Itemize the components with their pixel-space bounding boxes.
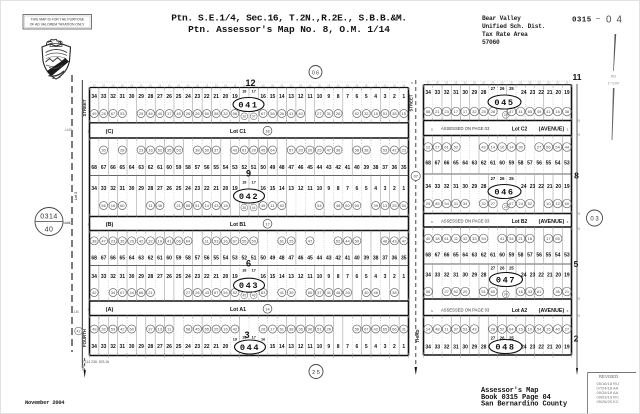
svg-text:23: 23 bbox=[111, 238, 116, 243]
svg-text:Tax Rate Area: Tax Rate Area bbox=[482, 31, 528, 38]
svg-text:2 5: 2 5 bbox=[312, 370, 320, 376]
svg-text:64: 64 bbox=[129, 165, 135, 171]
svg-text:38: 38 bbox=[195, 148, 200, 153]
svg-text:26: 26 bbox=[195, 290, 200, 295]
svg-text:54: 54 bbox=[481, 236, 486, 241]
svg-text:s: s bbox=[431, 220, 433, 224]
svg-text:7: 7 bbox=[346, 94, 349, 100]
svg-text:33: 33 bbox=[435, 345, 441, 351]
svg-text:26: 26 bbox=[166, 186, 172, 192]
svg-text:32: 32 bbox=[444, 345, 450, 351]
svg-text:66: 66 bbox=[139, 290, 144, 295]
svg-text:29: 29 bbox=[129, 238, 134, 243]
svg-text:36: 36 bbox=[392, 165, 398, 171]
svg-text:1: 1 bbox=[402, 186, 405, 192]
svg-text:46: 46 bbox=[148, 111, 153, 116]
svg-text:23: 23 bbox=[195, 94, 201, 100]
svg-text:38: 38 bbox=[214, 111, 219, 116]
svg-text:38: 38 bbox=[336, 148, 341, 153]
svg-text:40: 40 bbox=[158, 111, 163, 116]
svg-text:34: 34 bbox=[425, 345, 431, 351]
svg-text:20: 20 bbox=[556, 345, 562, 351]
svg-text:43: 43 bbox=[233, 148, 238, 153]
svg-text:04: 04 bbox=[606, 15, 627, 26]
svg-text:56: 56 bbox=[204, 256, 210, 262]
svg-text:25: 25 bbox=[176, 94, 182, 100]
svg-text:13: 13 bbox=[288, 186, 294, 192]
svg-text:33: 33 bbox=[101, 94, 107, 100]
svg-text:21: 21 bbox=[547, 90, 553, 96]
svg-text:57: 57 bbox=[195, 165, 201, 171]
svg-text:0314: 0314 bbox=[40, 214, 58, 221]
svg-text:30: 30 bbox=[129, 274, 135, 280]
svg-text:64: 64 bbox=[509, 327, 514, 332]
svg-text:28: 28 bbox=[120, 148, 125, 153]
svg-text:51: 51 bbox=[317, 327, 322, 332]
svg-text:63: 63 bbox=[138, 256, 144, 262]
svg-text:26: 26 bbox=[327, 327, 332, 332]
svg-text:64: 64 bbox=[462, 253, 468, 259]
svg-text:54: 54 bbox=[537, 327, 542, 332]
svg-text:29: 29 bbox=[472, 273, 478, 279]
svg-text:23: 23 bbox=[530, 345, 536, 351]
svg-text:29: 29 bbox=[472, 184, 478, 190]
svg-text:30: 30 bbox=[462, 90, 468, 96]
svg-text:22: 22 bbox=[204, 94, 210, 100]
svg-text:55: 55 bbox=[546, 253, 552, 259]
svg-text:44: 44 bbox=[317, 165, 323, 171]
svg-text:Lot B2: Lot B2 bbox=[512, 219, 528, 225]
svg-text:54: 54 bbox=[223, 290, 228, 295]
svg-text:45: 45 bbox=[307, 256, 313, 262]
svg-text:55: 55 bbox=[242, 238, 247, 243]
svg-text:65: 65 bbox=[453, 253, 459, 259]
svg-text:27: 27 bbox=[491, 266, 496, 271]
svg-text:27: 27 bbox=[444, 289, 449, 294]
svg-text:52: 52 bbox=[233, 290, 238, 295]
svg-text:25: 25 bbox=[289, 238, 294, 243]
svg-text:6: 6 bbox=[356, 186, 359, 192]
svg-text:20: 20 bbox=[556, 184, 562, 190]
svg-text:61: 61 bbox=[444, 145, 449, 150]
svg-text:45: 45 bbox=[307, 165, 313, 171]
svg-text:Lot A1: Lot A1 bbox=[230, 307, 246, 313]
svg-text:53: 53 bbox=[564, 253, 570, 259]
svg-text:60: 60 bbox=[166, 165, 172, 171]
svg-text:1: 1 bbox=[402, 94, 405, 100]
svg-text:41: 41 bbox=[289, 111, 294, 116]
svg-text:43: 43 bbox=[326, 165, 332, 171]
svg-text:63: 63 bbox=[472, 253, 478, 259]
svg-text:27: 27 bbox=[157, 186, 163, 192]
svg-text:28: 28 bbox=[261, 327, 266, 332]
svg-text:0 6: 0 6 bbox=[312, 70, 319, 76]
svg-text:21: 21 bbox=[148, 290, 153, 295]
svg-text:10: 10 bbox=[317, 274, 323, 280]
svg-text:Lot A2: Lot A2 bbox=[512, 308, 528, 314]
svg-text:28: 28 bbox=[148, 94, 154, 100]
svg-text:44: 44 bbox=[317, 256, 323, 262]
svg-text:48: 48 bbox=[279, 165, 285, 171]
svg-text:046: 046 bbox=[494, 187, 514, 197]
svg-text:17: 17 bbox=[265, 222, 269, 226]
svg-text:53: 53 bbox=[111, 327, 116, 332]
svg-text:60: 60 bbox=[166, 256, 172, 262]
svg-text:51: 51 bbox=[251, 256, 257, 262]
svg-text:11: 11 bbox=[307, 94, 313, 100]
svg-text:65: 65 bbox=[383, 327, 388, 332]
svg-text:67: 67 bbox=[233, 238, 238, 243]
svg-text:42: 42 bbox=[120, 327, 125, 332]
svg-text:OF AD VALOREM TAXATION ONLY.: OF AD VALOREM TAXATION ONLY. bbox=[30, 23, 85, 27]
svg-text:29: 29 bbox=[138, 344, 144, 350]
svg-text:1"=100': 1"=100' bbox=[608, 82, 620, 86]
svg-text:50: 50 bbox=[205, 148, 210, 153]
svg-text:54: 54 bbox=[223, 165, 229, 171]
svg-text:52: 52 bbox=[355, 111, 360, 116]
svg-text:32: 32 bbox=[110, 94, 116, 100]
svg-text:30: 30 bbox=[101, 148, 106, 153]
svg-text:33: 33 bbox=[101, 274, 107, 280]
svg-text:46: 46 bbox=[373, 290, 378, 295]
svg-text:26: 26 bbox=[166, 344, 172, 350]
svg-text:13: 13 bbox=[383, 203, 388, 208]
svg-text:10: 10 bbox=[546, 201, 551, 206]
svg-text:38: 38 bbox=[373, 165, 379, 171]
svg-text:59: 59 bbox=[509, 161, 515, 167]
svg-text:44: 44 bbox=[129, 290, 134, 295]
svg-text:s: s bbox=[88, 223, 90, 227]
svg-text:49: 49 bbox=[270, 256, 276, 262]
svg-text:9: 9 bbox=[327, 344, 330, 350]
svg-text:5: 5 bbox=[365, 274, 368, 280]
svg-text:48: 48 bbox=[336, 203, 341, 208]
svg-text:4: 4 bbox=[374, 186, 377, 192]
svg-text:65: 65 bbox=[491, 289, 496, 294]
svg-text:43: 43 bbox=[472, 327, 477, 332]
svg-text:66: 66 bbox=[392, 327, 397, 332]
svg-text:9: 9 bbox=[327, 94, 330, 100]
svg-text:21: 21 bbox=[176, 203, 181, 208]
svg-text:31: 31 bbox=[453, 345, 459, 351]
svg-text:26: 26 bbox=[336, 111, 341, 116]
svg-text:61: 61 bbox=[490, 161, 496, 167]
svg-text:11: 11 bbox=[307, 274, 313, 280]
svg-text:67: 67 bbox=[111, 111, 116, 116]
svg-text:San Bernardino County: San Bernardino County bbox=[481, 401, 568, 409]
svg-text:40: 40 bbox=[426, 236, 431, 241]
svg-text:(A): (A) bbox=[106, 307, 114, 313]
svg-text:32: 32 bbox=[444, 90, 450, 96]
svg-text:60: 60 bbox=[308, 290, 313, 295]
svg-text:65: 65 bbox=[120, 165, 126, 171]
svg-text:65: 65 bbox=[528, 109, 533, 114]
svg-text:16: 16 bbox=[223, 238, 228, 243]
svg-text:44: 44 bbox=[252, 206, 256, 210]
svg-text:18: 18 bbox=[242, 269, 246, 273]
svg-text:THIRD: THIRD bbox=[415, 329, 420, 342]
svg-text:-1445: -1445 bbox=[64, 128, 72, 132]
svg-text:26: 26 bbox=[166, 94, 172, 100]
svg-text:46: 46 bbox=[252, 294, 256, 298]
svg-text:10: 10 bbox=[317, 344, 323, 350]
svg-text:20: 20 bbox=[298, 148, 303, 153]
svg-text:62: 62 bbox=[148, 256, 154, 262]
svg-text:45: 45 bbox=[261, 203, 266, 208]
svg-text:5: 5 bbox=[365, 344, 368, 350]
svg-text:041: 041 bbox=[238, 100, 258, 110]
svg-text:24: 24 bbox=[185, 94, 191, 100]
svg-text:39: 39 bbox=[373, 203, 378, 208]
svg-text:35: 35 bbox=[401, 256, 407, 262]
svg-text:67: 67 bbox=[364, 327, 369, 332]
svg-text:57: 57 bbox=[527, 253, 533, 259]
svg-text:14: 14 bbox=[205, 203, 210, 208]
svg-text:2: 2 bbox=[393, 344, 396, 350]
svg-text:November 2004: November 2004 bbox=[25, 400, 65, 406]
svg-text:39: 39 bbox=[289, 290, 294, 295]
svg-text:31: 31 bbox=[327, 111, 332, 116]
svg-text:14: 14 bbox=[279, 274, 285, 280]
svg-text:9: 9 bbox=[327, 274, 330, 280]
svg-text:1: 1 bbox=[402, 274, 405, 280]
svg-text:61: 61 bbox=[444, 236, 449, 241]
svg-text:43: 43 bbox=[326, 256, 332, 262]
svg-text:12: 12 bbox=[555, 201, 560, 206]
svg-text:22: 22 bbox=[538, 184, 544, 190]
svg-text:33: 33 bbox=[435, 184, 441, 190]
svg-text:(AVENUE): (AVENUE) bbox=[539, 308, 565, 314]
svg-text:15: 15 bbox=[270, 274, 276, 280]
svg-text:35: 35 bbox=[401, 165, 407, 171]
svg-text:34: 34 bbox=[91, 274, 97, 280]
svg-text:6: 6 bbox=[246, 259, 251, 269]
svg-text:52: 52 bbox=[336, 238, 341, 243]
svg-text:19: 19 bbox=[232, 94, 238, 100]
svg-text:36: 36 bbox=[555, 289, 560, 294]
svg-text:34: 34 bbox=[425, 273, 431, 279]
svg-text:36: 36 bbox=[298, 327, 303, 332]
svg-text:40: 40 bbox=[354, 256, 360, 262]
svg-text:59: 59 bbox=[176, 256, 182, 262]
svg-text:31: 31 bbox=[120, 94, 126, 100]
svg-text:10: 10 bbox=[528, 327, 533, 332]
svg-text:42: 42 bbox=[335, 165, 341, 171]
svg-text:25: 25 bbox=[509, 86, 514, 91]
svg-text:39: 39 bbox=[364, 165, 370, 171]
svg-text:ASSESSED ON PAGE 03: ASSESSED ON PAGE 03 bbox=[441, 219, 490, 224]
svg-text:23: 23 bbox=[195, 186, 201, 192]
svg-text:17: 17 bbox=[270, 327, 275, 332]
svg-text:19: 19 bbox=[564, 90, 570, 96]
svg-text:22: 22 bbox=[538, 345, 544, 351]
svg-text:22: 22 bbox=[538, 273, 544, 279]
svg-text:49: 49 bbox=[92, 111, 97, 116]
svg-text:STREET: STREET bbox=[82, 99, 87, 116]
svg-text:16: 16 bbox=[555, 109, 560, 114]
svg-text:15: 15 bbox=[270, 94, 276, 100]
svg-text:45: 45 bbox=[195, 327, 200, 332]
svg-text:Ptn. Assessor's Map No. 8, O.M: Ptn. Assessor's Map No. 8, O.M. 1/14 bbox=[188, 24, 390, 35]
svg-text:27: 27 bbox=[537, 145, 542, 150]
svg-text:61: 61 bbox=[280, 327, 285, 332]
svg-text:24: 24 bbox=[521, 184, 527, 190]
svg-text:68: 68 bbox=[425, 253, 431, 259]
svg-text:31: 31 bbox=[120, 274, 126, 280]
svg-text:9: 9 bbox=[246, 169, 251, 179]
svg-text:16: 16 bbox=[223, 327, 228, 332]
svg-text:37: 37 bbox=[382, 256, 388, 262]
svg-text:61: 61 bbox=[280, 238, 285, 243]
svg-text:38: 38 bbox=[242, 206, 246, 210]
svg-text:24: 24 bbox=[521, 90, 527, 96]
svg-text:52: 52 bbox=[454, 145, 459, 150]
svg-text:60: 60 bbox=[355, 203, 360, 208]
svg-text:11: 11 bbox=[307, 186, 313, 192]
svg-text:3: 3 bbox=[384, 344, 387, 350]
svg-text:41: 41 bbox=[167, 238, 172, 243]
svg-text:61: 61 bbox=[490, 253, 496, 259]
svg-text:66: 66 bbox=[176, 238, 181, 243]
svg-text:56: 56 bbox=[536, 161, 542, 167]
svg-text:20: 20 bbox=[556, 273, 562, 279]
svg-text:7: 7 bbox=[346, 344, 349, 350]
svg-text:5: 5 bbox=[365, 94, 368, 100]
svg-text:23: 23 bbox=[530, 184, 536, 190]
svg-text:59: 59 bbox=[176, 165, 182, 171]
svg-text:25: 25 bbox=[577, 119, 581, 123]
svg-text:s: s bbox=[567, 127, 569, 131]
svg-text:31: 31 bbox=[120, 344, 126, 350]
svg-text:46: 46 bbox=[298, 165, 304, 171]
svg-text:11: 11 bbox=[573, 72, 582, 82]
svg-text:27: 27 bbox=[157, 344, 163, 350]
svg-text:53: 53 bbox=[383, 148, 388, 153]
svg-text:25: 25 bbox=[509, 176, 514, 181]
svg-text:23: 23 bbox=[139, 148, 144, 153]
svg-text:21: 21 bbox=[565, 289, 570, 294]
svg-text:17: 17 bbox=[252, 90, 256, 94]
svg-text:24: 24 bbox=[504, 293, 508, 297]
svg-text:044: 044 bbox=[240, 343, 260, 353]
svg-text:38: 38 bbox=[364, 148, 369, 153]
svg-text:34: 34 bbox=[425, 90, 431, 96]
svg-text:54: 54 bbox=[223, 256, 229, 262]
svg-text:39: 39 bbox=[364, 256, 370, 262]
svg-text:4: 4 bbox=[374, 94, 377, 100]
svg-text:23: 23 bbox=[530, 273, 536, 279]
svg-text:17: 17 bbox=[463, 109, 468, 114]
svg-text:26: 26 bbox=[500, 266, 505, 271]
svg-text:63: 63 bbox=[280, 203, 285, 208]
svg-text:4: 4 bbox=[374, 344, 377, 350]
svg-text:18: 18 bbox=[528, 236, 533, 241]
svg-text:REVISED: REVISED bbox=[599, 374, 618, 379]
svg-text:26: 26 bbox=[280, 111, 285, 116]
svg-text:48: 48 bbox=[279, 256, 285, 262]
svg-text:16: 16 bbox=[148, 148, 153, 153]
svg-text:24: 24 bbox=[185, 186, 191, 192]
svg-text:38: 38 bbox=[289, 327, 294, 332]
svg-text:47: 47 bbox=[101, 238, 106, 243]
svg-text:57: 57 bbox=[527, 161, 533, 167]
svg-text:s: s bbox=[431, 127, 433, 131]
svg-text:32: 32 bbox=[148, 238, 153, 243]
svg-text:13: 13 bbox=[158, 327, 163, 332]
svg-text:28: 28 bbox=[481, 345, 487, 351]
svg-text:25: 25 bbox=[176, 344, 182, 350]
svg-text:10: 10 bbox=[500, 145, 505, 150]
svg-text:35: 35 bbox=[167, 148, 172, 153]
svg-text:RD: RD bbox=[611, 75, 617, 79]
svg-text:17: 17 bbox=[252, 181, 256, 185]
svg-text:16: 16 bbox=[111, 203, 116, 208]
svg-text:13: 13 bbox=[288, 94, 294, 100]
svg-text:2: 2 bbox=[574, 334, 579, 344]
svg-text:28: 28 bbox=[186, 111, 191, 116]
svg-text:25: 25 bbox=[176, 186, 182, 192]
svg-text:33: 33 bbox=[101, 186, 107, 192]
svg-text:25: 25 bbox=[509, 266, 514, 271]
svg-text:13: 13 bbox=[288, 274, 294, 280]
svg-text:22: 22 bbox=[538, 90, 544, 96]
svg-text:53: 53 bbox=[232, 256, 238, 262]
svg-text:67: 67 bbox=[214, 290, 219, 295]
svg-text:31: 31 bbox=[453, 184, 459, 190]
svg-text:(C): (C) bbox=[106, 129, 114, 135]
svg-text:35: 35 bbox=[120, 238, 125, 243]
svg-text:54: 54 bbox=[555, 145, 560, 150]
svg-text:THIS MAP IS FOR THE PURPOSE: THIS MAP IS FOR THE PURPOSE bbox=[31, 18, 85, 22]
svg-text:62: 62 bbox=[481, 253, 487, 259]
svg-text:34: 34 bbox=[509, 236, 514, 241]
svg-text:27: 27 bbox=[491, 86, 496, 91]
svg-text:5: 5 bbox=[365, 186, 368, 192]
svg-text:26: 26 bbox=[166, 274, 172, 280]
svg-text:Unified Sch. Dist.: Unified Sch. Dist. bbox=[482, 23, 545, 30]
svg-text:60: 60 bbox=[499, 253, 505, 259]
svg-text:53: 53 bbox=[214, 238, 219, 243]
svg-text:30: 30 bbox=[308, 327, 313, 332]
svg-text:31: 31 bbox=[453, 90, 459, 96]
svg-text:2: 2 bbox=[393, 186, 396, 192]
svg-text:15: 15 bbox=[518, 327, 523, 332]
svg-text:47: 47 bbox=[308, 238, 313, 243]
svg-text:21: 21 bbox=[518, 236, 523, 241]
svg-text:42: 42 bbox=[77, 329, 81, 333]
svg-text:28: 28 bbox=[481, 90, 487, 96]
svg-text:64: 64 bbox=[462, 161, 468, 167]
svg-text:28: 28 bbox=[345, 290, 350, 295]
svg-text:66: 66 bbox=[110, 256, 116, 262]
svg-text:14: 14 bbox=[265, 307, 269, 311]
svg-text:52: 52 bbox=[528, 201, 533, 206]
svg-text:(B): (B) bbox=[106, 222, 114, 228]
svg-text:59: 59 bbox=[509, 253, 515, 259]
svg-text:63: 63 bbox=[472, 161, 478, 167]
svg-text:s: s bbox=[567, 220, 569, 224]
svg-text:27: 27 bbox=[157, 274, 163, 280]
svg-text:33: 33 bbox=[435, 273, 441, 279]
svg-text:32: 32 bbox=[481, 201, 486, 206]
svg-text:41: 41 bbox=[327, 290, 332, 295]
svg-text:45: 45 bbox=[261, 148, 266, 153]
svg-text:5: 5 bbox=[574, 259, 579, 269]
svg-text:61: 61 bbox=[242, 148, 247, 153]
svg-text:46: 46 bbox=[158, 203, 163, 208]
svg-text:60: 60 bbox=[205, 111, 210, 116]
svg-text:40: 40 bbox=[364, 290, 369, 295]
